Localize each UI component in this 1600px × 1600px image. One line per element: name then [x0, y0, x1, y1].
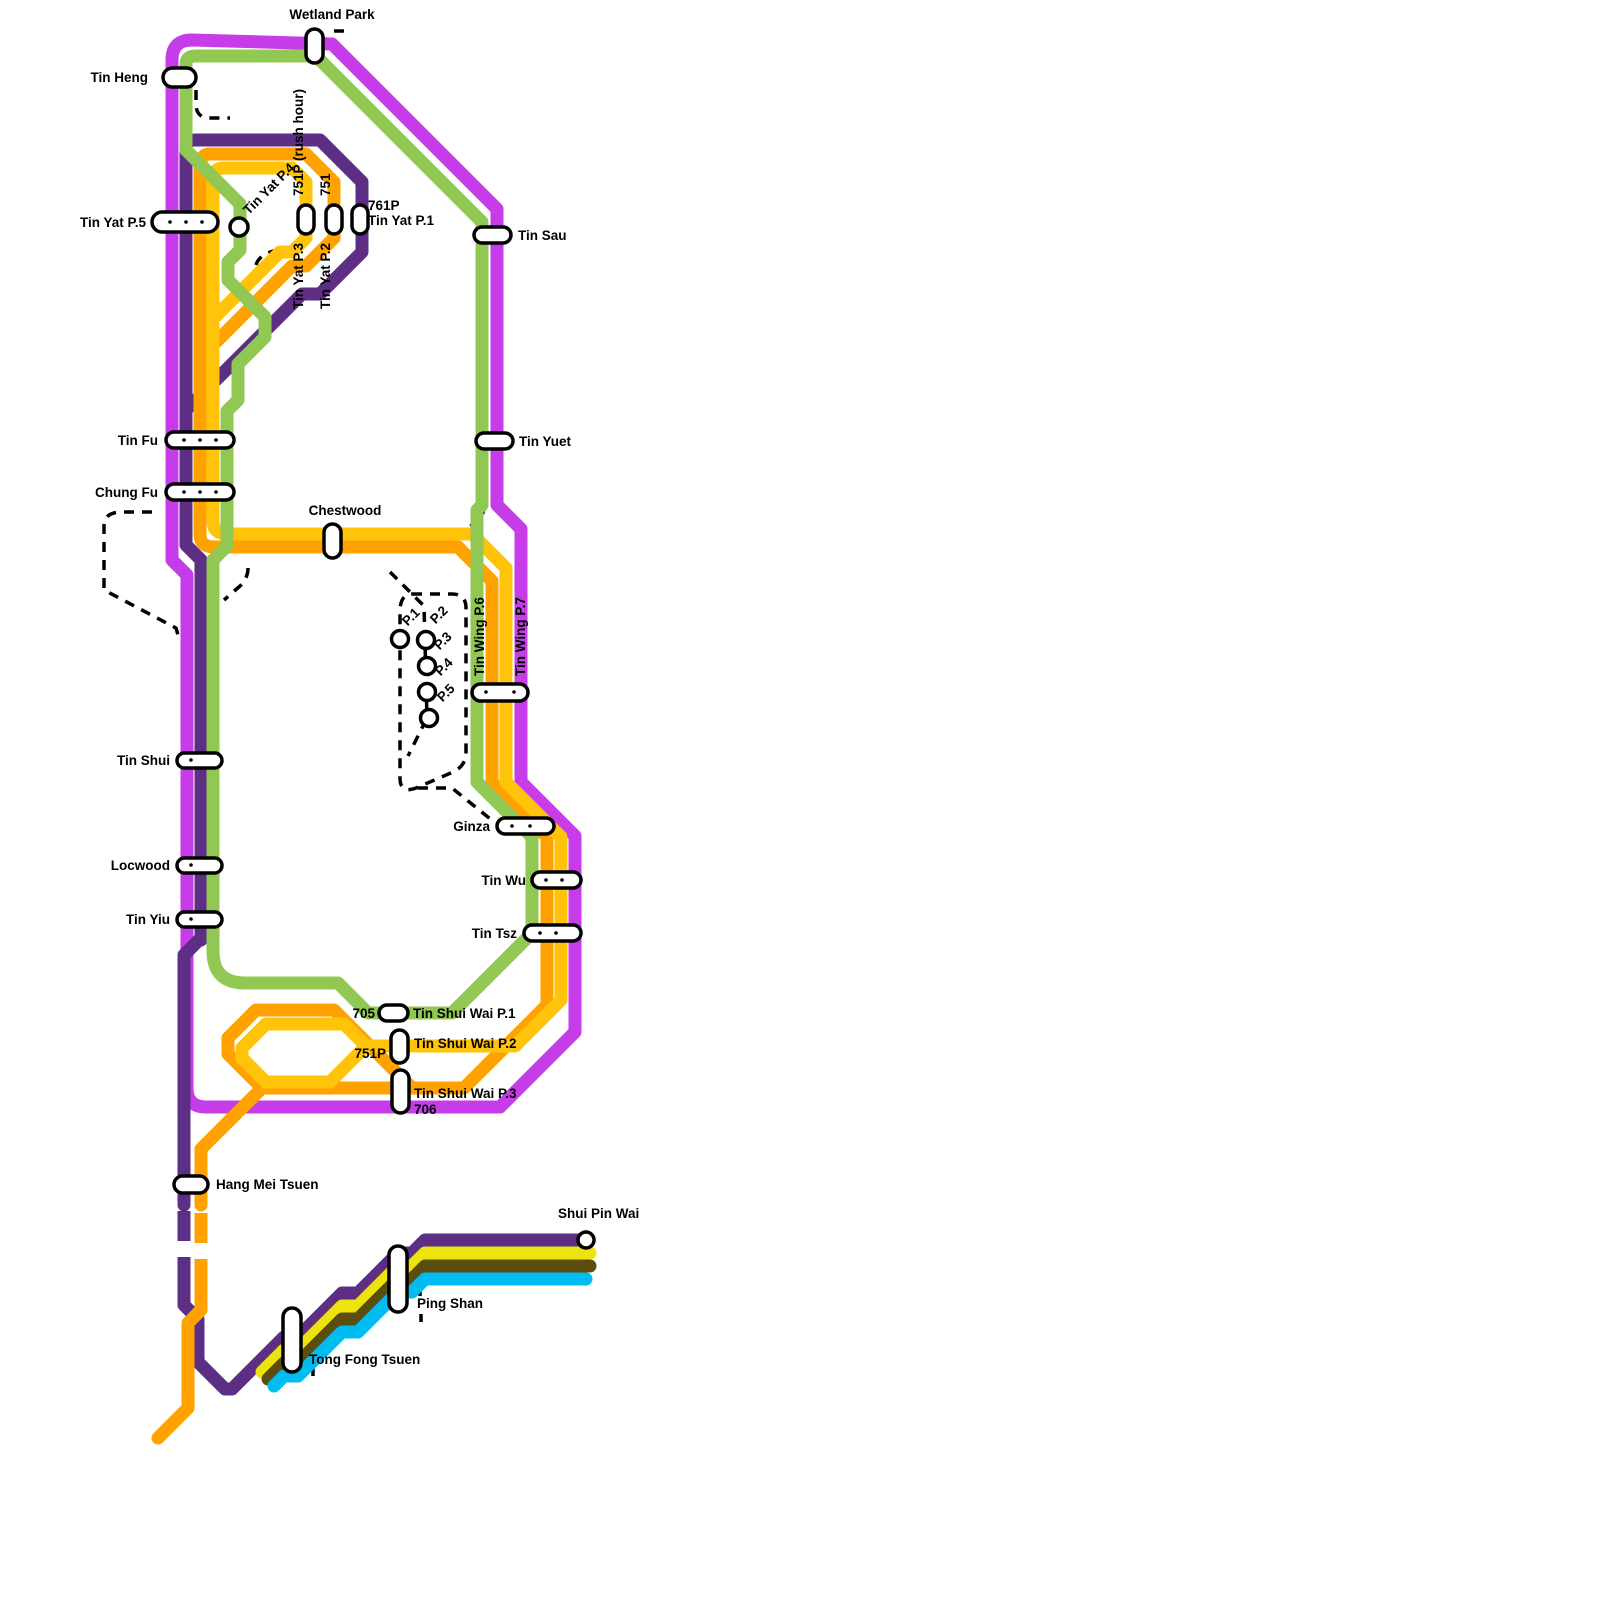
station-chestwood[interactable]	[324, 524, 341, 558]
station-label-tin-yat-p3: Tin Yat P.3	[291, 243, 306, 310]
station-label-tin-yiu: Tin Yiu	[126, 912, 170, 927]
station-hang-mei-tsuen[interactable]	[174, 1176, 208, 1193]
station-ginza[interactable]	[497, 818, 554, 834]
station-tin-yiu[interactable]	[177, 912, 222, 927]
platform-label-p3: P.3	[431, 629, 455, 653]
platform-label-p5: P.5	[434, 681, 458, 705]
station-tin-shui[interactable]	[177, 753, 222, 768]
station-tin-heng[interactable]	[163, 68, 196, 87]
station-label-tin-wu: Tin Wu	[482, 873, 527, 888]
station-tin-yat-p3[interactable]	[298, 205, 314, 234]
station-tin-tsz[interactable]	[524, 925, 581, 941]
station-label-tin-shui-wai-p1: Tin Shui Wai P.1	[413, 1006, 516, 1021]
transit-map-canvas: Wetland Park Tin Heng Tin Yat P.5 Tin Ya…	[0, 0, 1600, 1600]
station-tin-wing[interactable]	[472, 684, 528, 701]
station-label-tin-shui: Tin Shui	[117, 753, 170, 768]
light-rail-map: Wetland Park Tin Heng Tin Yat P.5 Tin Ya…	[0, 0, 1600, 1600]
station-tin-fu[interactable]	[166, 432, 234, 448]
station-label-wetland-park: Wetland Park	[289, 7, 375, 22]
platform-tin-wing-p1[interactable]	[392, 631, 409, 648]
station-label-locwood: Locwood	[111, 858, 170, 873]
station-label-tin-shui-wai-p3: Tin Shui Wai P.3	[414, 1086, 517, 1101]
route-751p-group	[213, 168, 561, 1082]
station-chung-fu[interactable]	[166, 484, 234, 500]
route-label-751p: 751P	[354, 1046, 386, 1061]
station-label-tin-heng: Tin Heng	[90, 70, 148, 85]
station-label-tin-tsz: Tin Tsz	[472, 926, 518, 941]
station-label-shui-pin-wai: Shui Pin Wai	[558, 1206, 639, 1221]
station-wetland-park[interactable]	[306, 29, 323, 63]
station-label-tong-fong-tsuen: Tong Fong Tsuen	[309, 1352, 420, 1367]
station-tin-yat-p1[interactable]	[352, 205, 368, 234]
station-shui-pin-wai[interactable]	[578, 1232, 594, 1248]
station-tin-wu[interactable]	[532, 872, 581, 888]
dashed-segment-chestwood-west	[224, 568, 248, 600]
station-tin-yat-p4[interactable]	[230, 218, 248, 236]
route-label-751p-rush-hour: 751P (rush hour)	[291, 89, 306, 196]
station-ping-shan[interactable]	[389, 1246, 407, 1312]
station-tin-shui-wai-p2[interactable]	[391, 1030, 408, 1063]
station-label-chestwood: Chestwood	[309, 503, 382, 518]
station-label-chung-fu: Chung Fu	[95, 485, 158, 500]
route-label-706: 706	[414, 1102, 437, 1117]
route-label-761p: 761P	[368, 198, 400, 213]
station-label-ginza: Ginza	[453, 819, 490, 834]
platform-label-p2: P.2	[427, 603, 451, 627]
route-label-705: 705	[352, 1006, 375, 1021]
station-tin-yat-p5[interactable]	[152, 212, 218, 232]
station-label-hang-mei-tsuen: Hang Mei Tsuen	[216, 1177, 319, 1192]
station-label-tin-wing-p7: Tin Wing P.7	[513, 597, 528, 676]
station-tin-shui-wai-p3[interactable]	[392, 1070, 409, 1113]
platform-label-p1: P.1	[399, 605, 423, 629]
station-locwood[interactable]	[177, 858, 222, 873]
station-tin-yat-p2[interactable]	[326, 205, 342, 234]
station-label-tin-yuet: Tin Yuet	[519, 434, 572, 449]
platform-label-p4: P.4	[432, 655, 456, 679]
dashed-segment-tin-heng	[196, 90, 230, 118]
station-label-tin-fu: Tin Fu	[118, 433, 158, 448]
station-label-ping-shan: Ping Shan	[417, 1296, 483, 1311]
station-tin-sau[interactable]	[474, 227, 511, 243]
station-tin-shui-wai-p1[interactable]	[379, 1005, 408, 1021]
platform-tin-wing-p4[interactable]	[419, 684, 436, 701]
station-label-tin-wing-p6: Tin Wing P.6	[472, 597, 487, 676]
route-label-751: 751	[318, 173, 333, 196]
station-tong-fong-tsuen[interactable]	[283, 1308, 301, 1372]
station-label-tin-yat-p5: Tin Yat P.5	[80, 215, 147, 230]
station-label-tin-yat-p1: Tin Yat P.1	[368, 213, 435, 228]
station-tin-yuet[interactable]	[476, 433, 513, 449]
station-label-tin-sau: Tin Sau	[518, 228, 567, 243]
station-label-tin-shui-wai-p2: Tin Shui Wai P.2	[414, 1036, 517, 1051]
platform-tin-wing-p5[interactable]	[421, 710, 438, 727]
station-label-tin-yat-p2: Tin Yat P.2	[318, 243, 333, 309]
